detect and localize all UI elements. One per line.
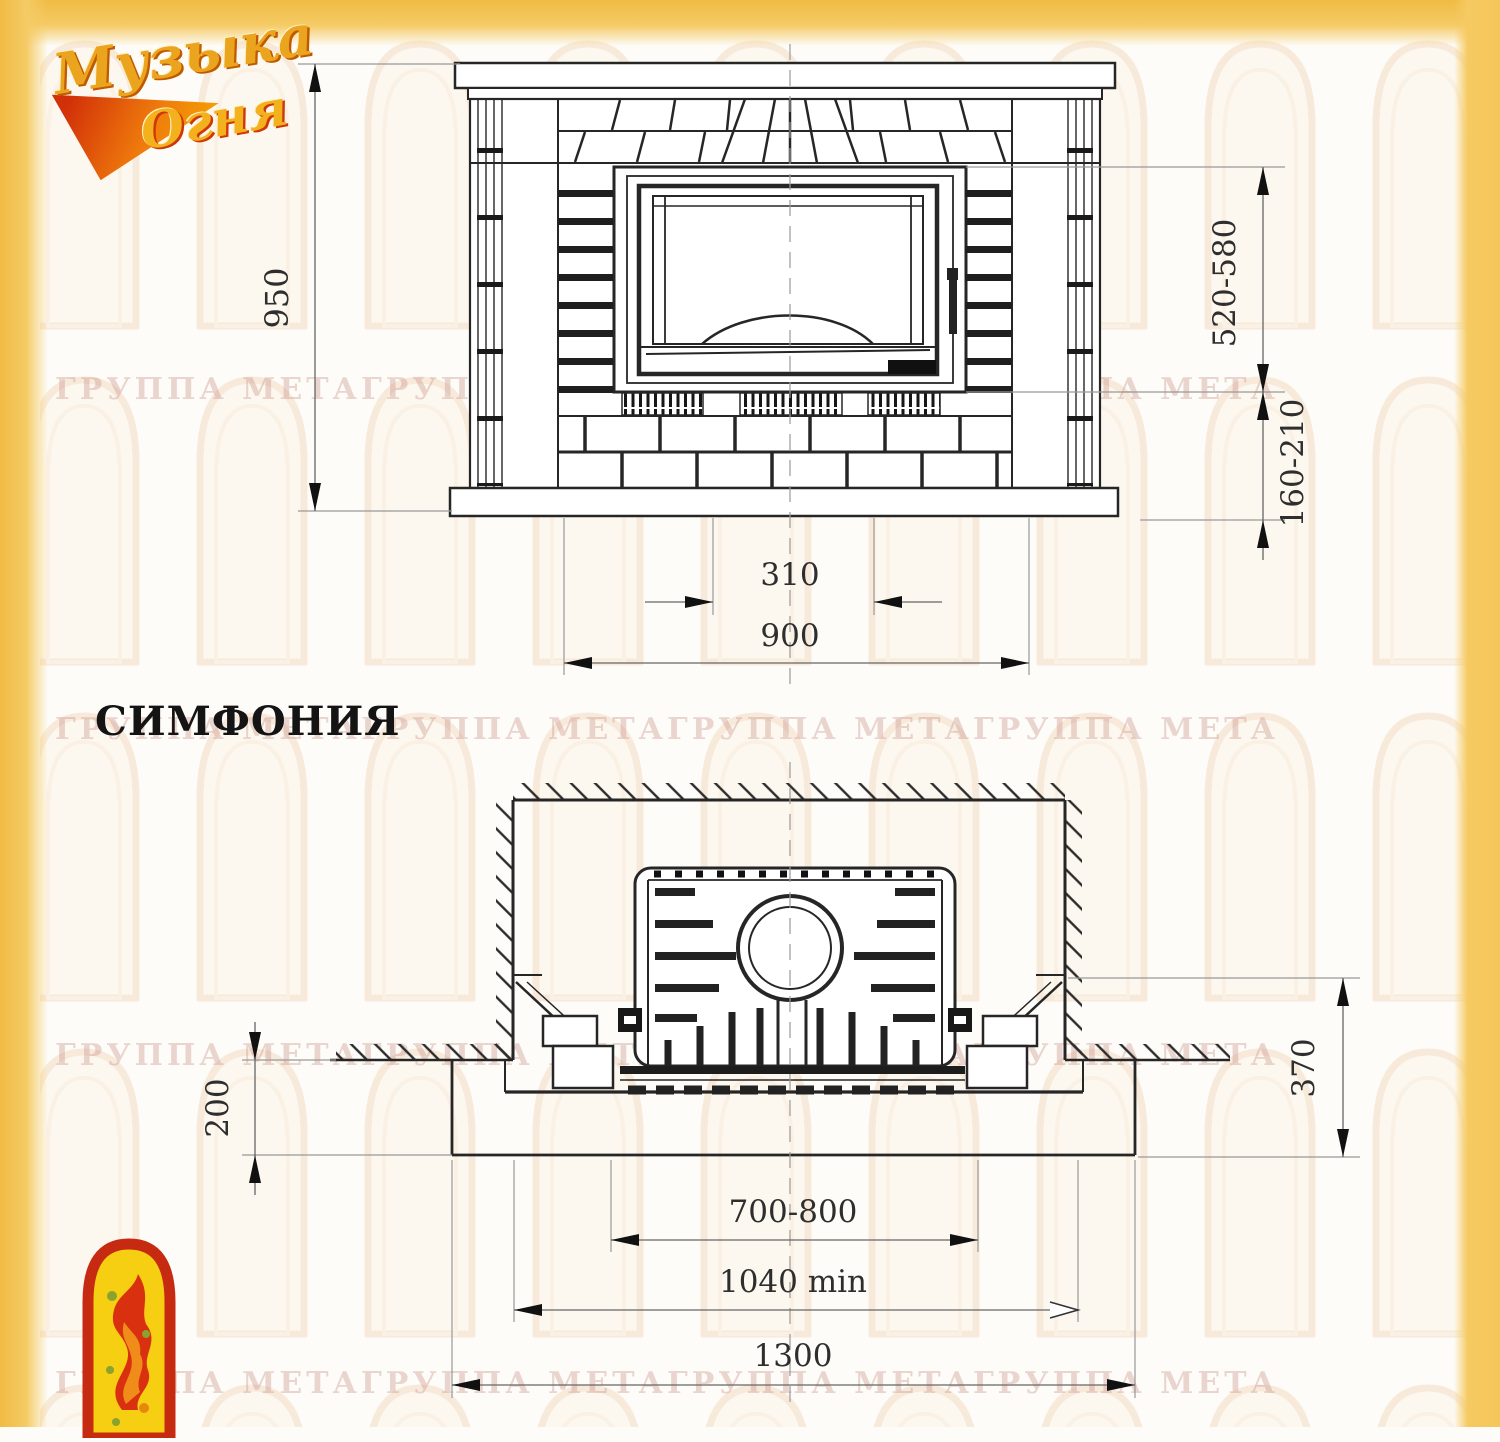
dim-front-height: 950 xyxy=(258,267,296,328)
firebox-insert-plan xyxy=(618,868,972,1090)
front-elevation-view xyxy=(450,44,1118,690)
right-cheek-block xyxy=(983,1016,1037,1046)
dim-plan-insert: 700-800 xyxy=(729,1194,858,1230)
plan-view xyxy=(330,762,1230,1405)
dim-front-opening: 310 xyxy=(760,557,819,593)
floor-hatch-right xyxy=(1068,1044,1230,1060)
wall-hatch-right xyxy=(1065,800,1082,1060)
brand-logo: Музыка Огня xyxy=(18,4,308,174)
left-cheek-block xyxy=(543,1016,597,1046)
dim-plan-base: 1300 xyxy=(754,1338,833,1374)
wall-hatch-top xyxy=(513,783,1065,800)
mantel-shelf xyxy=(455,63,1115,88)
plinth-base xyxy=(450,488,1118,516)
ash-lip xyxy=(888,360,936,374)
dim-front-glass: 520-580 xyxy=(1207,219,1243,348)
dim-plan-slab: 200 xyxy=(200,1078,236,1137)
dim-front-width: 900 xyxy=(760,618,819,654)
door-handle xyxy=(947,268,958,280)
dim-plan-depth: 370 xyxy=(1286,1038,1322,1097)
flame-emblem xyxy=(82,1238,176,1438)
model-title: СИМФОНИЯ xyxy=(95,698,401,745)
flame-emblem-icon xyxy=(82,1238,176,1438)
dim-plan-min-niche: 1040 min xyxy=(719,1264,867,1300)
dim-front-hearth: 160-210 xyxy=(1275,399,1311,528)
air-grille xyxy=(622,393,940,415)
wall-hatch-left xyxy=(496,800,513,1060)
floor-hatch-left xyxy=(336,1044,513,1060)
